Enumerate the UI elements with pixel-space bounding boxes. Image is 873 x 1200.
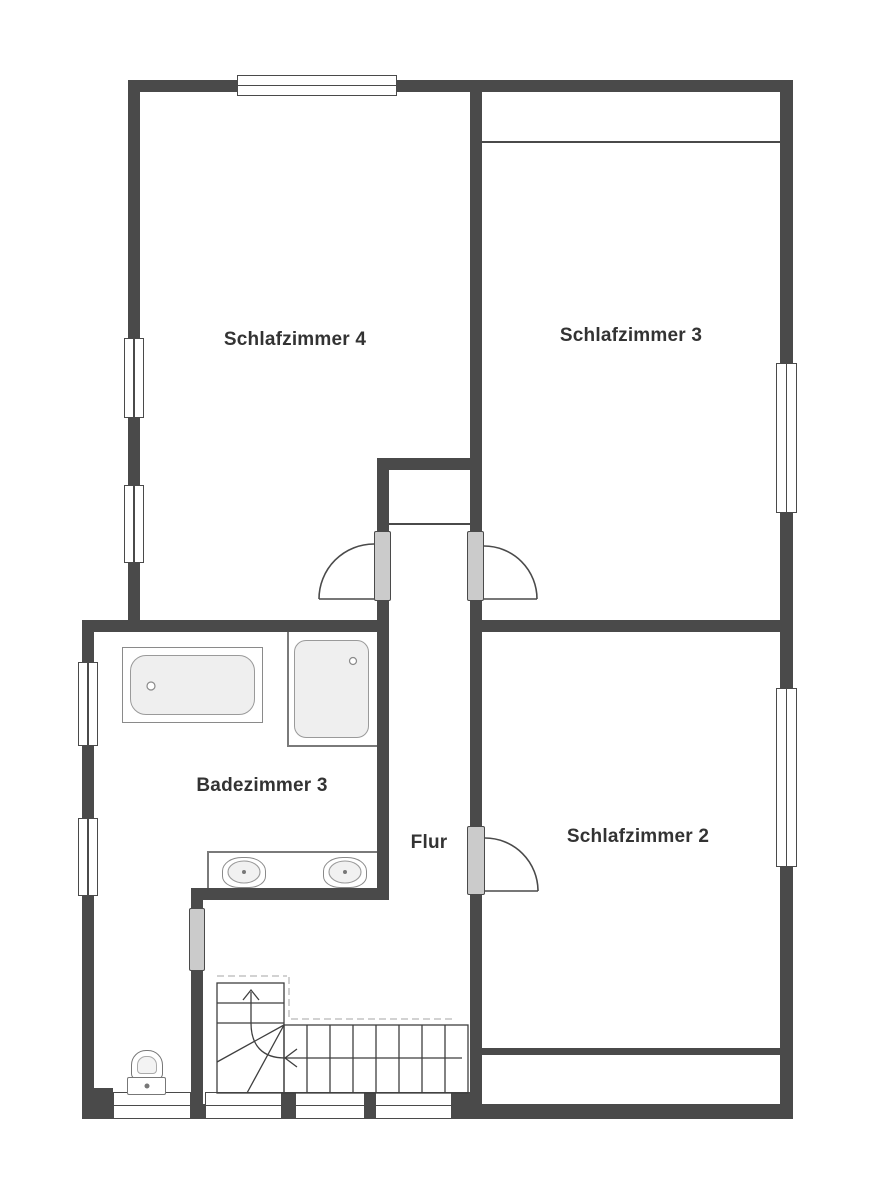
window-pane-line	[114, 1105, 190, 1106]
door-sz3	[484, 546, 537, 599]
wall-flur-right-a	[470, 601, 482, 827]
shower-enclosure-left-line	[287, 632, 289, 747]
shower-enclosure-bottom-line	[287, 745, 377, 747]
window-left-lower-2	[78, 818, 98, 896]
wall-bottom-pier-2	[365, 1092, 375, 1119]
wall-right-c	[780, 867, 793, 1119]
staircase-icon	[217, 983, 468, 1093]
door-jamb-sz4	[374, 531, 391, 601]
stair-arrow-up	[243, 990, 259, 1000]
door-swing-arc	[484, 546, 537, 599]
stair-upper-flight	[217, 983, 284, 1093]
wall-left-lower-b	[82, 746, 94, 818]
vanity-counter-left-line	[207, 851, 209, 888]
passage-opening-stair	[189, 908, 205, 971]
door-jamb-sz3	[467, 531, 484, 601]
knee-wall-line-sz3	[482, 141, 780, 143]
window-pane-line	[87, 663, 88, 745]
stair-winder	[217, 1025, 284, 1062]
room-label-badezimmer-3: Badezimmer 3	[196, 775, 327, 797]
stair-winder	[247, 1025, 284, 1093]
window-pane-line	[786, 689, 787, 866]
room-label-schlafzimmer-2: Schlafzimmer 2	[567, 826, 709, 848]
door-swing-arc	[319, 544, 374, 599]
room-label-schlafzimmer-4: Schlafzimmer 4	[224, 329, 366, 351]
shower-icon	[294, 640, 369, 738]
door-jamb-sz2	[467, 826, 485, 895]
wall-niche-stub	[377, 458, 482, 470]
door-sz2	[485, 838, 538, 891]
wall-bottom-pier-3	[452, 1092, 470, 1119]
window-pane-line	[87, 819, 88, 895]
room-label-flur: Flur	[411, 832, 448, 854]
wall-wc-stair-b	[191, 971, 203, 1119]
bathtub-basin	[130, 655, 255, 715]
wall-left-upper-b	[128, 418, 140, 485]
window-left-upper-1	[124, 338, 144, 418]
wall-bath-top	[82, 620, 389, 632]
niche-line	[389, 523, 470, 525]
wall-bath-bottom	[191, 888, 389, 900]
window-right-sz2	[776, 688, 797, 867]
window-bottom-2	[205, 1092, 282, 1119]
door-swing-arc	[485, 838, 538, 891]
stair-dashed-lines	[217, 976, 455, 1019]
washbasin-left-icon	[222, 857, 266, 888]
window-left-lower-1	[78, 662, 98, 746]
wall-sz3-sz2	[482, 620, 780, 632]
door-sz4	[319, 544, 374, 599]
wall-bottom-pier-1	[282, 1092, 295, 1119]
window-pane-line	[376, 1105, 451, 1106]
wall-flur-right-b	[470, 895, 482, 1119]
wall-left-lower-a	[82, 632, 94, 662]
window-bottom-1	[113, 1092, 191, 1119]
wall-top	[128, 80, 793, 92]
wall-wc-stair-a	[191, 900, 203, 908]
wall-bottom-corner-block	[82, 1088, 113, 1119]
window-pane-line	[786, 364, 787, 512]
wall-right-b	[780, 513, 793, 688]
stair-arrow-left	[285, 1049, 297, 1067]
stair-lower-flight	[284, 1025, 468, 1093]
wall-sz2-bottom-thin	[482, 1048, 780, 1055]
stair-walk-line	[251, 992, 462, 1058]
window-top	[237, 75, 397, 96]
room-label-schlafzimmer-3: Schlafzimmer 3	[560, 325, 702, 347]
window-pane-line	[296, 1105, 364, 1106]
window-bottom-4	[375, 1092, 452, 1119]
window-left-upper-2	[124, 485, 144, 563]
vanity-counter-top-line	[207, 851, 377, 853]
washbasin-right-icon	[323, 857, 367, 888]
window-right-sz3	[776, 363, 797, 513]
window-pane-line	[206, 1105, 281, 1106]
wall-right-a	[780, 80, 793, 363]
wall-left-lower-c	[82, 896, 94, 1119]
wall-left-upper-a	[128, 80, 140, 338]
floor-plan: Schlafzimmer 4 Schlafzimmer 3 Badezimmer…	[0, 0, 873, 1200]
toilet-tank	[127, 1077, 166, 1095]
window-pane-line	[133, 486, 134, 562]
window-bottom-3	[295, 1092, 365, 1119]
toilet-bowl-inner	[137, 1056, 157, 1074]
window-pane-line	[133, 339, 134, 417]
window-pane-line	[238, 85, 396, 86]
